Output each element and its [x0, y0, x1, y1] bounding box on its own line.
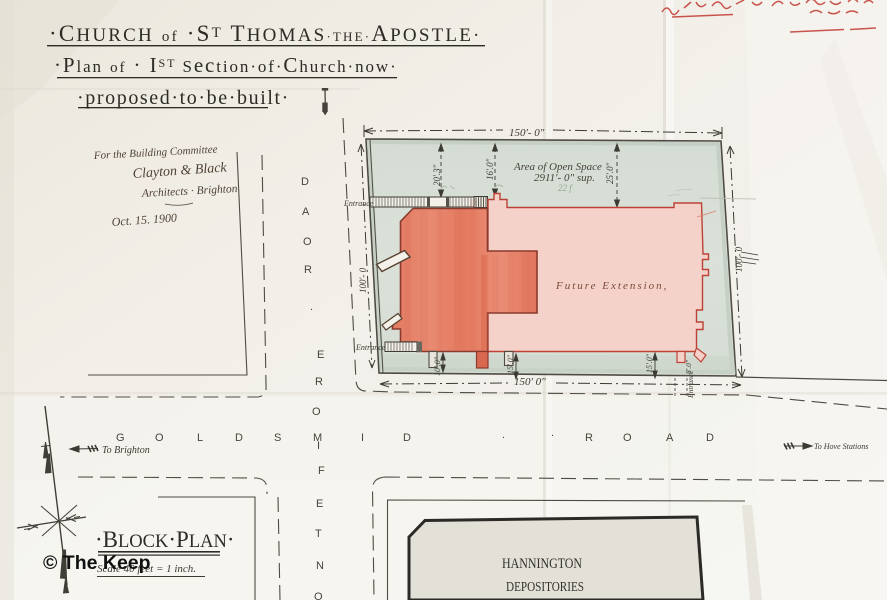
svg-text:A: A [666, 432, 674, 444]
svg-text:Entrance: Entrance [355, 343, 386, 352]
svg-text:O: O [623, 432, 632, 444]
svg-text:HANNINGTON: HANNINGTON [502, 556, 582, 572]
svg-text:D: D [706, 432, 714, 444]
svg-text:16'.0": 16'.0" [485, 158, 495, 180]
svg-text:8'.0": 8'.0" [684, 359, 693, 374]
svg-text:·CHURCH of ·ST THOMAS·THE·APOS: ·CHURCH of ·ST THOMAS·THE·APOSTLE· [49, 21, 482, 46]
svg-text:E: E [316, 498, 323, 510]
svg-text:25'.0": 25'.0" [605, 162, 615, 184]
svg-text:N: N [316, 560, 324, 572]
svg-text:R: R [585, 432, 593, 444]
svg-text:M: M [313, 432, 322, 444]
svg-text:D: D [301, 176, 309, 188]
svg-text:To Brighton: To Brighton [102, 445, 150, 456]
svg-text:10'.0": 10'.0" [433, 356, 442, 376]
svg-text:15'.0": 15'.0" [506, 354, 515, 374]
svg-text:150'- 0": 150'- 0" [509, 127, 545, 139]
svg-text:Future Extension,: Future Extension, [555, 280, 668, 292]
svg-text:D: D [235, 432, 243, 444]
svg-text:·proposed·to·be·built·: ·proposed·to·be·built· [77, 87, 290, 109]
svg-text:.: . [502, 429, 505, 441]
svg-text:E: E [317, 349, 324, 361]
svg-text:.: . [551, 427, 554, 439]
svg-text:O: O [312, 406, 321, 418]
svg-text:22 f: 22 f [558, 183, 573, 193]
svg-text:L: L [197, 432, 203, 444]
svg-text:O: O [303, 236, 312, 248]
svg-text:S: S [274, 432, 281, 444]
svg-text:·Plan of · IST Section·of·Chur: ·Plan of · IST Section·of·Church·now· [54, 53, 398, 77]
svg-text:.: . [310, 301, 313, 313]
svg-text:I: I [361, 432, 364, 444]
svg-text:© The Keep: © The Keep [43, 552, 151, 574]
svg-text:R: R [315, 376, 323, 388]
svg-text:To Hove Stations: To Hove Stations [814, 442, 868, 451]
svg-text:100'- 0: 100'- 0 [358, 267, 368, 293]
svg-text:O: O [314, 591, 323, 600]
svg-text:T: T [315, 528, 322, 540]
svg-text:A: A [302, 206, 310, 218]
svg-text:R: R [304, 264, 312, 276]
svg-text:O: O [155, 432, 164, 444]
svg-text:F: F [318, 465, 325, 477]
svg-text:150' 0": 150' 0" [514, 376, 546, 388]
svg-text:D: D [403, 432, 411, 444]
svg-text:DEPOSITORIES: DEPOSITORIES [506, 580, 584, 595]
svg-text:G: G [116, 432, 125, 444]
svg-text:20'.3": 20'.3" [432, 164, 442, 186]
svg-text:15'.0": 15'.0" [645, 353, 654, 373]
svg-text:100'- 0: 100'- 0 [734, 246, 744, 272]
